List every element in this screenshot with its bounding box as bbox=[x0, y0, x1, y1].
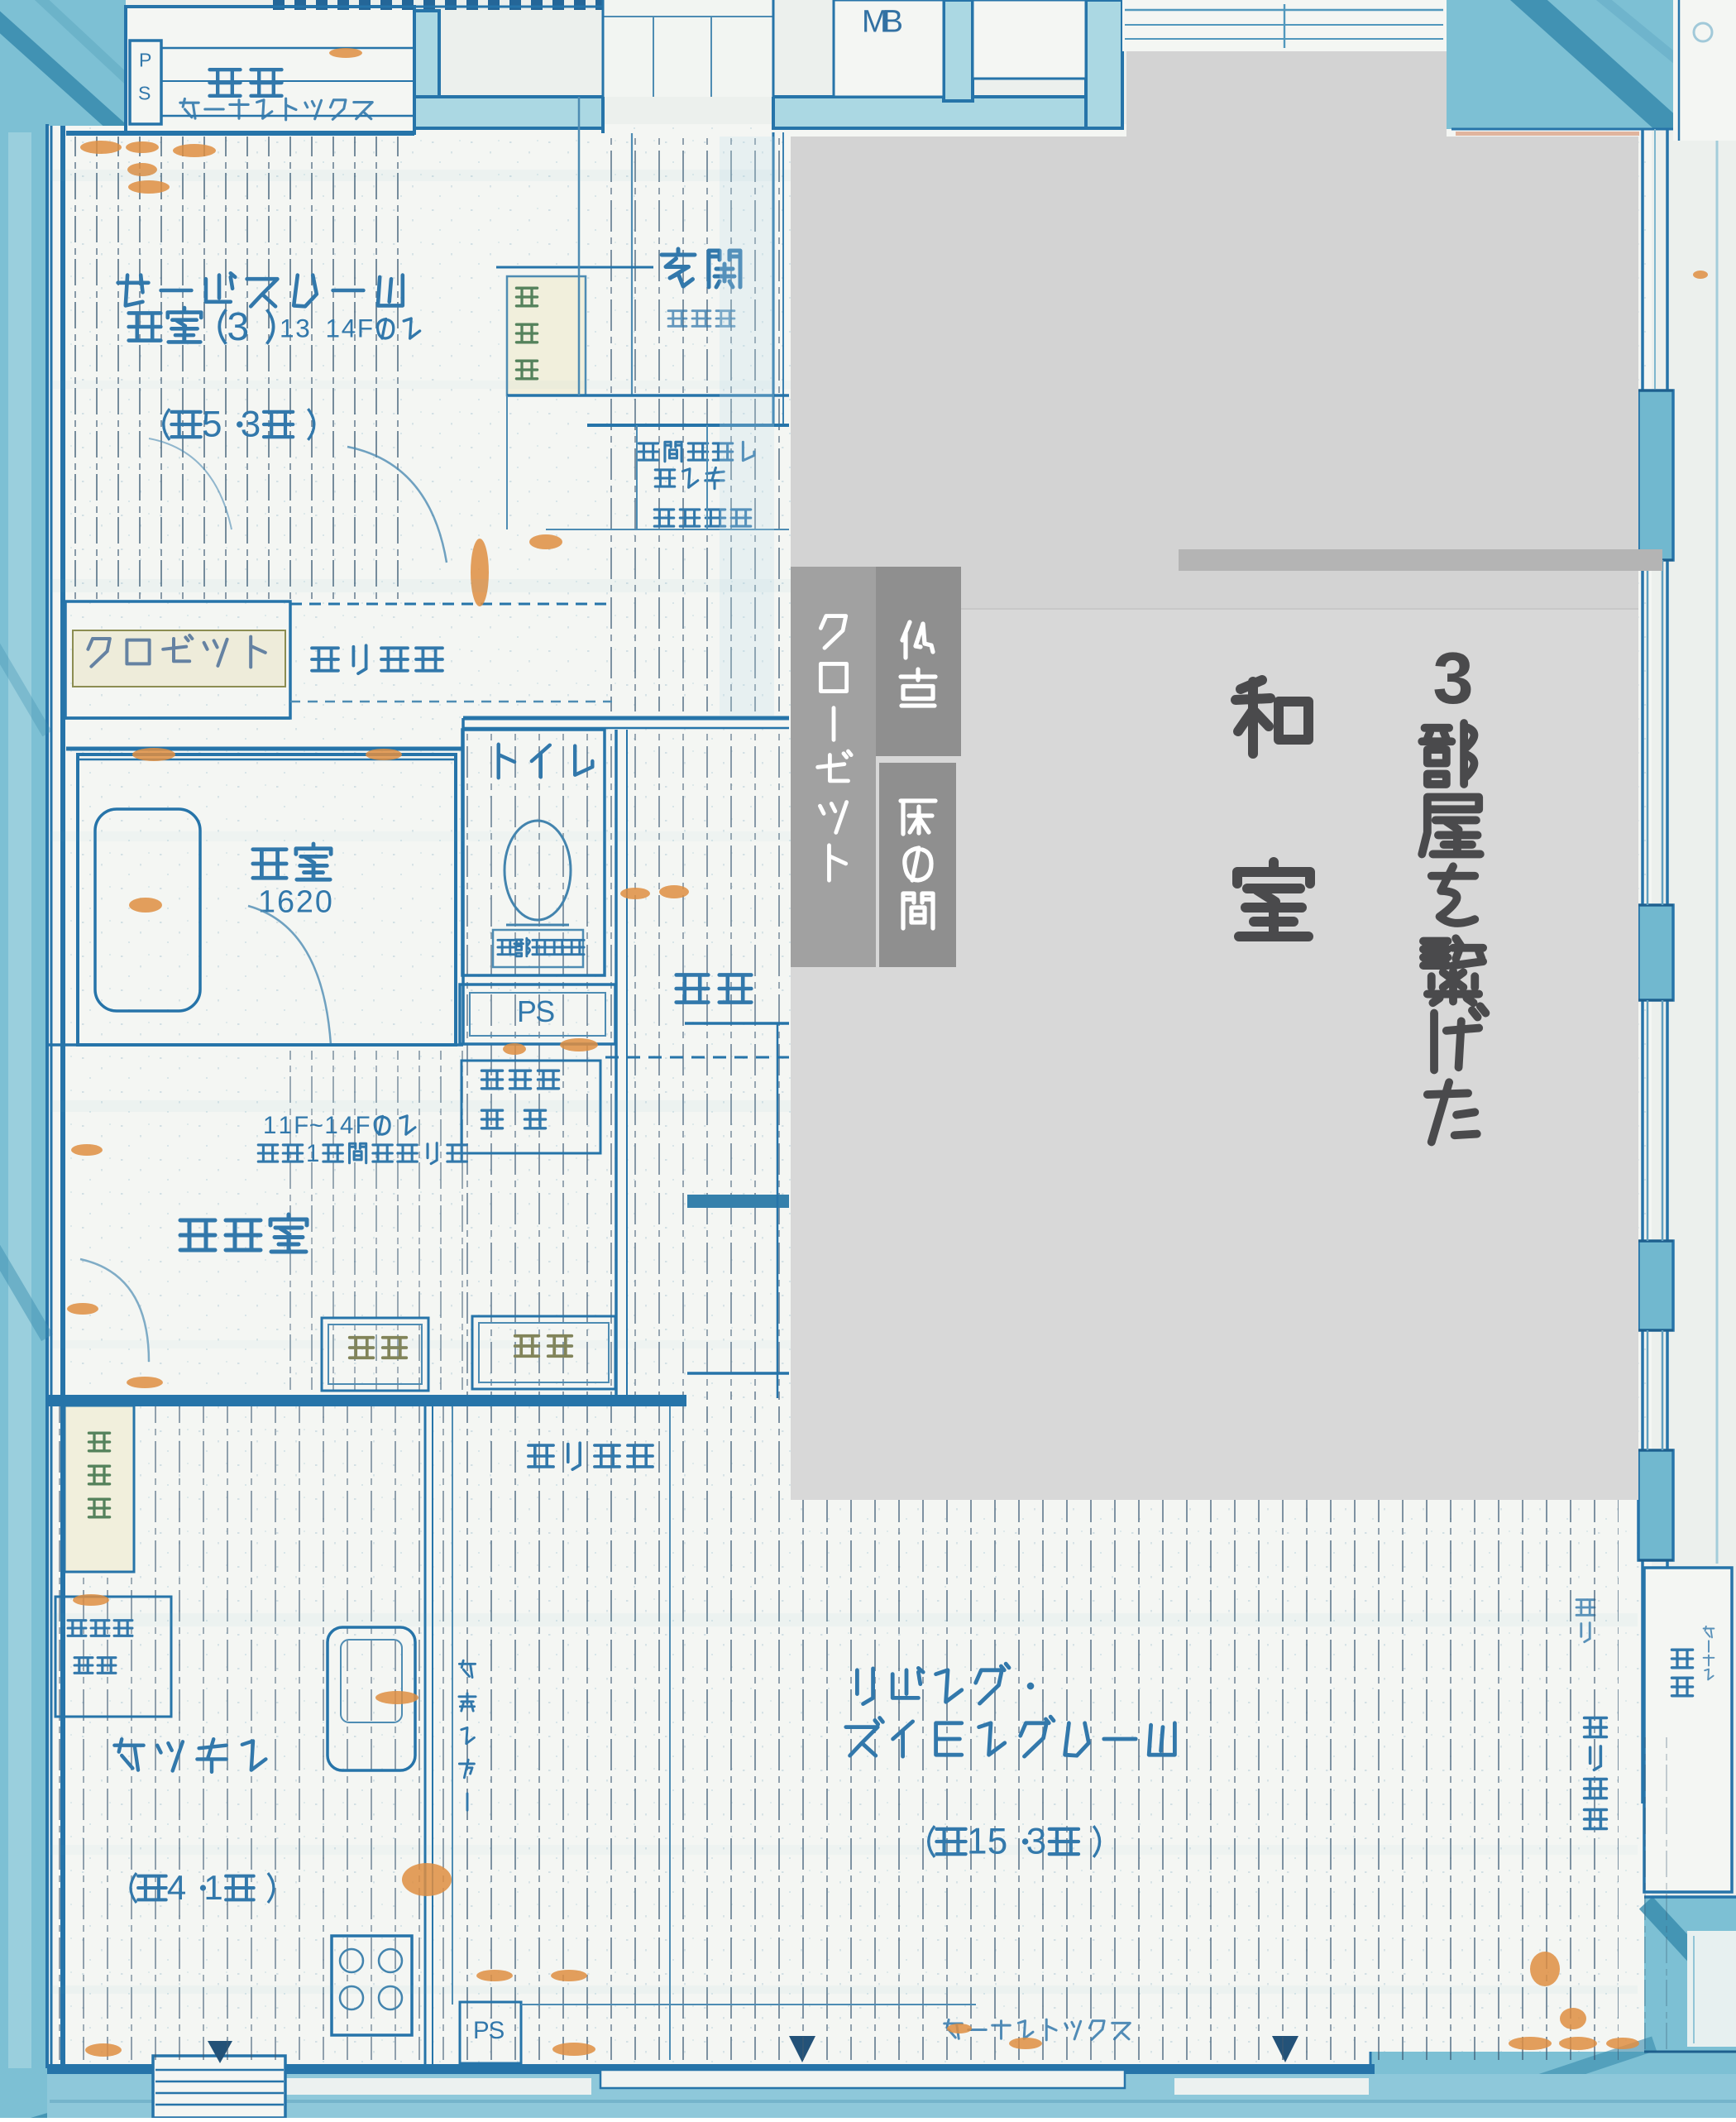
svg-text:3: 3 bbox=[1432, 637, 1473, 719]
